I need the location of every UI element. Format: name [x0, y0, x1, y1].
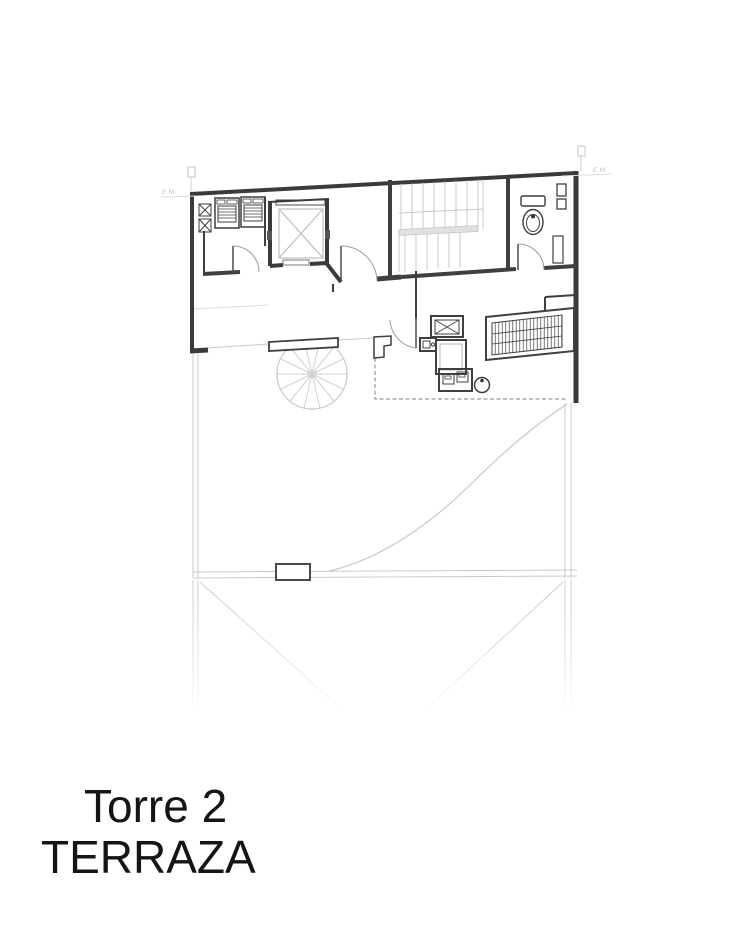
- staircase: [399, 180, 483, 273]
- kitchen-l-wall: [374, 336, 391, 358]
- bathroom: [521, 184, 566, 263]
- elevator: [267, 199, 341, 292]
- grill-deck: [486, 308, 574, 360]
- round-table: [475, 378, 490, 393]
- elevator-sill: [283, 260, 309, 265]
- exterior-walls: [190, 171, 577, 403]
- elevator-cab: [279, 209, 323, 258]
- plan-title-tower: Torre 2: [84, 783, 227, 829]
- wall-vent: [557, 199, 566, 209]
- louvered-unit: [215, 198, 239, 228]
- marker-symbol-icon: [188, 167, 195, 177]
- kitchen-door: [390, 318, 416, 348]
- marker-label: E.M.: [162, 189, 177, 196]
- outdoor-kitchen: [374, 308, 574, 393]
- equipment-closet: [199, 197, 265, 274]
- north-wall: [191, 173, 577, 194]
- reference-markers: E.M. E.M.: [161, 146, 612, 197]
- pergola-dashed-outline: [375, 358, 566, 399]
- toilet: [521, 196, 545, 235]
- terrace-step: [276, 564, 310, 580]
- shaft-box-icon: [199, 204, 211, 232]
- planter-box: [269, 338, 338, 351]
- bathroom-cabinet: [553, 236, 563, 263]
- floor-plan-page: E.M. E.M. Torre 2 TERRAZA: [0, 0, 732, 950]
- closet-door: [233, 246, 259, 272]
- marker-symbol-icon: [578, 146, 585, 156]
- interior-walls: [377, 177, 576, 318]
- hall-door: [341, 246, 377, 282]
- cooktop-box: [420, 338, 436, 351]
- louvered-unit: [241, 197, 265, 227]
- terrace-edge: [338, 338, 374, 340]
- counter-hatch: [431, 316, 463, 337]
- fade-overlay: [140, 712, 640, 752]
- marker-label: E.M.: [593, 167, 608, 174]
- terrace-edge: [208, 344, 269, 348]
- terrace-curved-edge: [329, 404, 567, 571]
- wall-vent: [557, 184, 566, 196]
- plan-title-level: TERRAZA: [41, 834, 256, 880]
- fade-overlay: [140, 593, 640, 714]
- double-sink: [439, 369, 472, 391]
- chamfer-wall: [327, 264, 341, 282]
- bathroom-door: [518, 244, 544, 270]
